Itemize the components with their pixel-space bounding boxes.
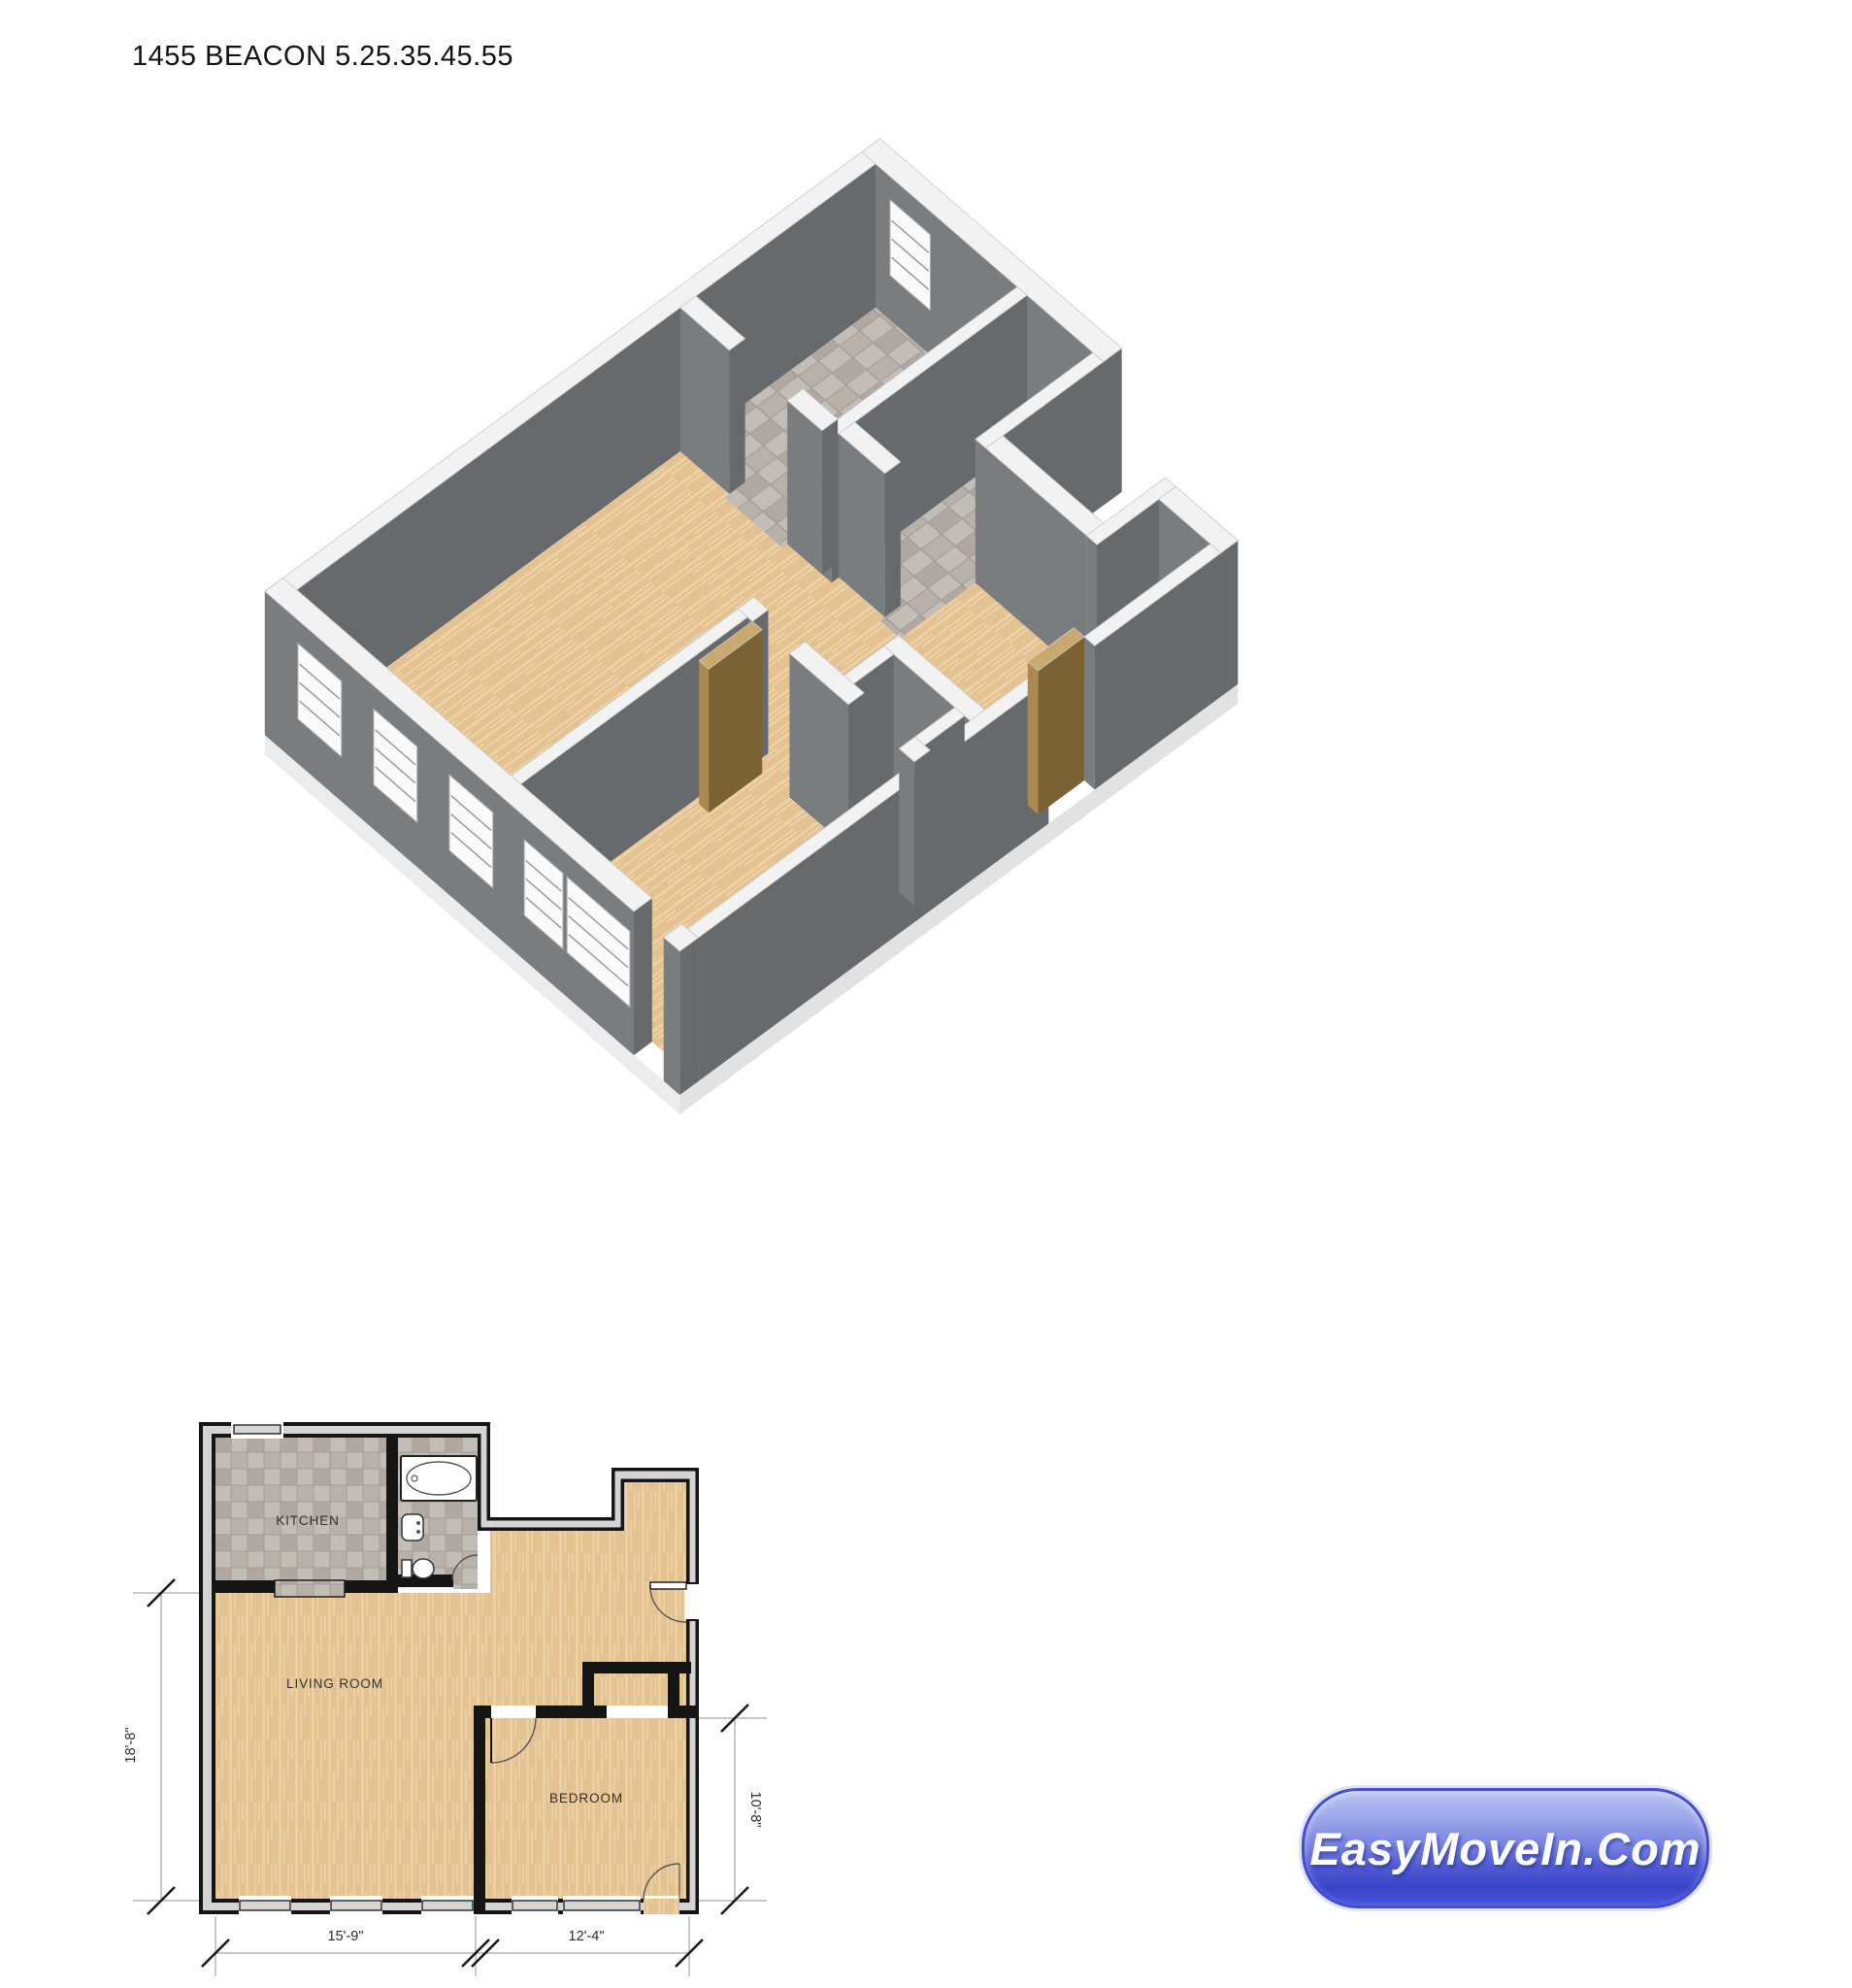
iso-wall-east-face [729, 339, 744, 494]
iso-wall-east-face [914, 750, 930, 906]
dim-right: 10'-8" [747, 1792, 763, 1828]
window [563, 1896, 641, 1916]
iso-wall-south-face [976, 439, 986, 591]
iso-wall-east-face [822, 419, 838, 575]
kitchen-opening-floor [275, 1580, 345, 1597]
plan-2d-view: KITCHEN LIVING ROOM BEDROOM 18'-8" 15'-9… [97, 1398, 796, 1988]
iso-wall-south-face [1084, 637, 1095, 789]
iso-wall-east-face [1104, 348, 1122, 506]
iso-wall-east-face [885, 462, 901, 617]
bath-doorway-floor [453, 1574, 478, 1589]
toilet [402, 1560, 412, 1577]
window [231, 1420, 283, 1439]
entry-floor [624, 1482, 686, 1531]
window [512, 1896, 558, 1916]
passage-floor [474, 1593, 490, 1706]
iso-floorplan-view [0, 0, 1852, 1301]
iso-wall-south-face [664, 938, 680, 1095]
dim-bottom-right: 12'-4" [569, 1929, 605, 1944]
iso-wall-east-face [1221, 541, 1239, 697]
iso-door-leaf-south-face [699, 661, 709, 813]
iso-door-leaf-south-face [1028, 662, 1039, 814]
window [421, 1896, 474, 1916]
dim-left: 18'-8" [123, 1728, 139, 1764]
window [239, 1896, 291, 1916]
kitchen-label: KITCHEN [276, 1513, 340, 1528]
living-room-floor [215, 1593, 474, 1899]
easymovein-logo[interactable]: EasyMoveIn.Com [1302, 1788, 1709, 1908]
living-room-label: LIVING ROOM [286, 1676, 383, 1691]
iso-wall-south-face [899, 748, 914, 906]
iso-wall-east-face [679, 938, 698, 1095]
window [330, 1896, 382, 1916]
sink [402, 1514, 423, 1541]
iso-wall-east-face [634, 898, 652, 1055]
easymovein-logo-text: EasyMoveIn.Com [1309, 1822, 1701, 1875]
iso-wall-east-face [924, 715, 964, 888]
iso-walls [265, 139, 1238, 1095]
dim-bottom-left: 15'-9" [328, 1929, 364, 1944]
page: { "title": "1455 BEACON 5.25.35.45.55", … [0, 0, 1852, 1988]
bedroom-label: BEDROOM [549, 1791, 623, 1806]
kitchen-floor [215, 1438, 386, 1580]
